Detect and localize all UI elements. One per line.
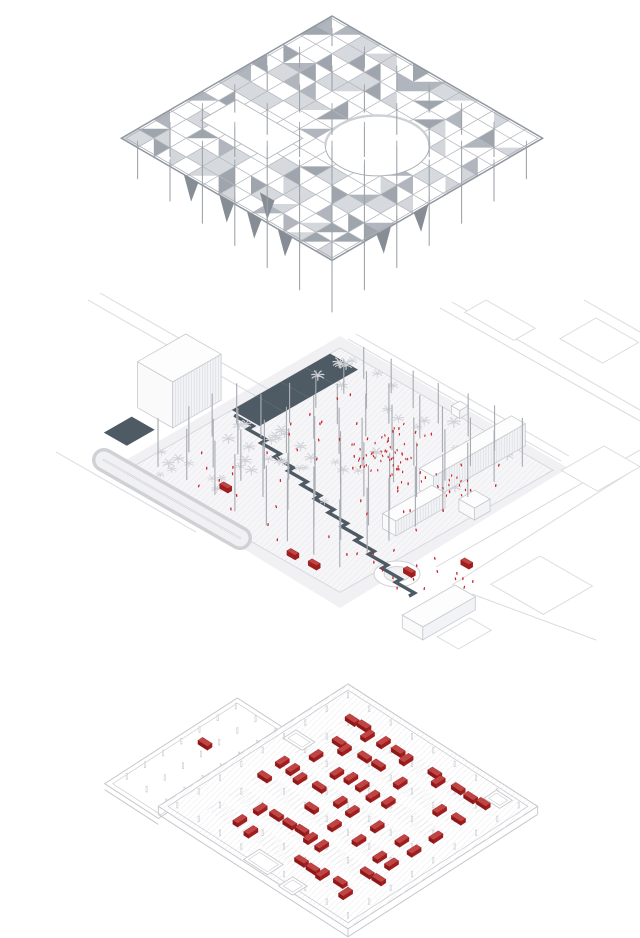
canopy-rect-opening (201, 100, 303, 159)
ground-plaza-layer (56, 293, 640, 649)
canopy-circular-oculus (325, 115, 429, 175)
exploded-axonometric-drawing (0, 0, 640, 938)
canopy-roof-layer (121, 16, 542, 312)
exploded-axon-diagram-page (0, 0, 640, 938)
underground-parking-layer (105, 684, 538, 937)
canopy-shade-panels (121, 16, 526, 260)
